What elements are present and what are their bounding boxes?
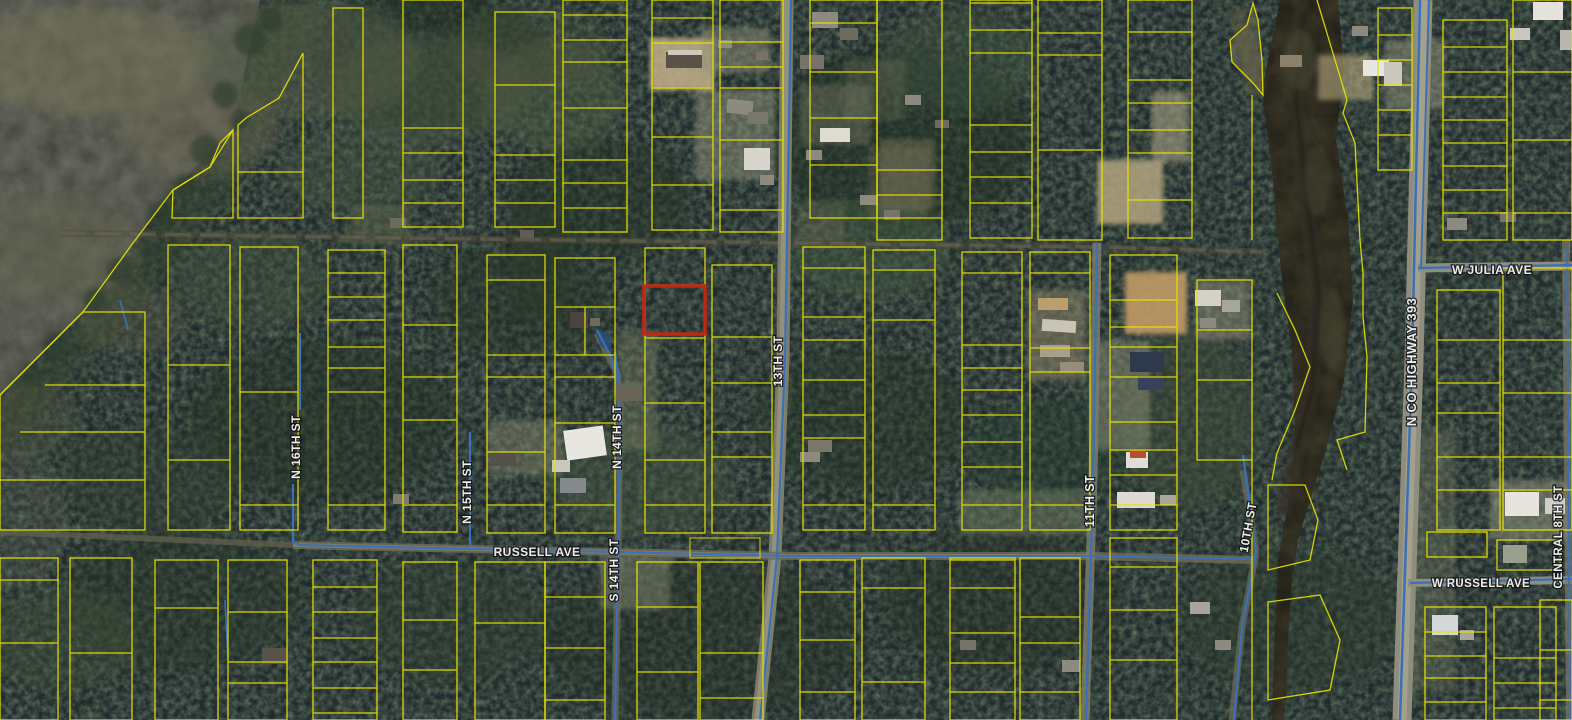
svg-text:RUSSELL AVE: RUSSELL AVE — [494, 545, 581, 559]
svg-text:W RUSSELL AVE: W RUSSELL AVE — [1432, 578, 1530, 590]
svg-text:N CO HIGHWAY 393: N CO HIGHWAY 393 — [1404, 298, 1419, 427]
svg-text:N 14TH ST: N 14TH ST — [610, 405, 624, 469]
svg-text:N 16TH ST: N 16TH ST — [289, 415, 303, 479]
svg-text:W JULIA AVE: W JULIA AVE — [1452, 263, 1532, 277]
svg-text:11TH ST: 11TH ST — [1083, 475, 1097, 527]
svg-text:13TH ST: 13TH ST — [771, 335, 785, 386]
svg-text:S 14TH ST: S 14TH ST — [607, 538, 621, 601]
svg-text:CENTRAL 8TH ST: CENTRAL 8TH ST — [1553, 485, 1565, 588]
svg-text:N 15TH ST: N 15TH ST — [460, 460, 474, 524]
